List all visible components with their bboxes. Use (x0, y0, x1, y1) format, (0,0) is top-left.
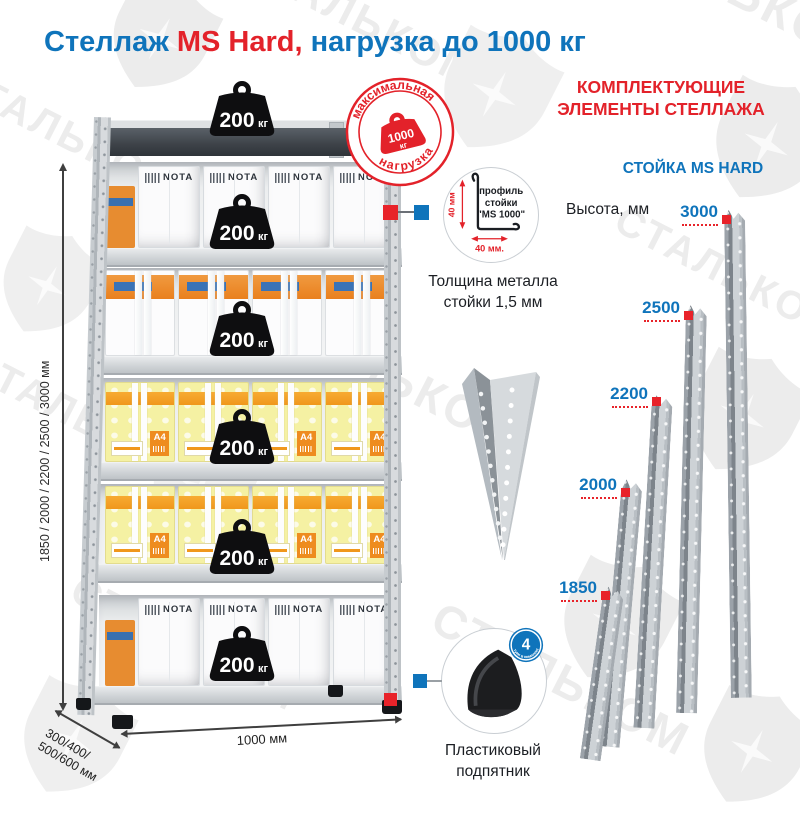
foot-caption: Пластиковый подпятник (417, 740, 569, 782)
red-marker-square (722, 215, 731, 224)
load-value: 200 (219, 329, 254, 352)
profile-cross-section-drawing: 40 мм 40 мм. профиль стойки "MS 1000" (444, 168, 537, 261)
post-height-label: 3000 (680, 203, 718, 226)
barcode-icon (145, 173, 160, 183)
connector-red-square (384, 693, 397, 706)
orange-stripe (179, 496, 247, 509)
orange-stripe (106, 392, 174, 405)
orange-stripe (253, 392, 321, 405)
profile-label: профиль (479, 186, 523, 197)
post-height-label: 2000 (579, 476, 617, 499)
orange-box (105, 620, 135, 686)
load-value: 200 (219, 654, 254, 677)
orange-stripe (253, 496, 321, 509)
post-subheading: СТОЙКА MS HARD (602, 160, 784, 178)
connector-blue-square (414, 205, 429, 220)
profile-caption-line: стойки 1,5 мм (417, 292, 569, 313)
strap (354, 271, 361, 355)
red-marker-square (601, 591, 610, 600)
load-unit: кг (258, 556, 269, 568)
profile-caption: Толщина металла стойки 1,5 мм (417, 271, 569, 313)
a4-label: A4 (297, 533, 316, 558)
post-3000 (724, 210, 752, 698)
title-part-blue: Стеллаж (44, 26, 177, 58)
dotted-leader (644, 320, 680, 322)
barcode-icon (340, 173, 355, 183)
barcode-icon (210, 605, 225, 615)
load-unit: кг (258, 446, 269, 458)
nota-paper-box: NOTA (138, 166, 200, 248)
load-value: 200 (219, 547, 254, 570)
box-brand-label: NOTA (228, 172, 258, 183)
profile-label: "MS 1000" (477, 209, 525, 220)
badge-4-pack: 4 штуки в комплекте (508, 627, 544, 663)
connector-blue-square (413, 674, 427, 688)
profile-dim-vertical: 40 мм (447, 192, 457, 217)
strap (135, 271, 142, 355)
post-2200 (633, 395, 673, 729)
post-height-value: 2500 (642, 299, 680, 316)
load-unit: кг (258, 231, 269, 243)
yellow-paper-box: A4 (105, 486, 175, 564)
shelf-beam (94, 356, 402, 375)
kettlebell-weight-icon: 200кг (202, 300, 282, 358)
box-brand-label: NOTA (163, 604, 193, 615)
barcode-icon (210, 173, 225, 183)
post-height-label: 2200 (610, 385, 648, 408)
dotted-leader (612, 406, 648, 408)
height-dimension-label: 1850 / 2000 / 2200 / 2500 / 3000 мм (38, 298, 52, 562)
dotted-leader (682, 224, 718, 226)
box-brand-label: NOTA (293, 172, 323, 183)
box-brand-label: NOTA (228, 604, 258, 615)
height-dimension-arrow (62, 170, 64, 704)
kettlebell-weight-icon: 200кг (202, 625, 282, 683)
kettlebell-weight-icon: 200кг (202, 80, 282, 138)
barcode-icon (275, 173, 290, 183)
post-height-label: 1850 (559, 579, 597, 602)
title-part-blue: нагрузка до 1000 кг (303, 26, 586, 58)
dotted-leader (581, 497, 617, 499)
page-title: Стеллаж MS Hard, нагрузка до 1000 кг (44, 26, 586, 59)
barcode-icon (340, 605, 355, 615)
post-height-value: 1850 (559, 579, 597, 596)
foot-caption-line: подпятник (417, 761, 569, 782)
load-value: 200 (219, 222, 254, 245)
rack-foot (76, 698, 91, 710)
box-brand-label: NOTA (163, 172, 193, 183)
box-brand-label: NOTA (293, 604, 323, 615)
dotted-leader (561, 600, 597, 602)
connector-red-square (383, 205, 398, 220)
corner-post-photo (452, 360, 544, 565)
strap (363, 271, 370, 355)
kettlebell-weight-icon: 200кг (202, 518, 282, 576)
components-heading-line: ЭЛЕМЕНТЫ СТЕЛЛАЖА (548, 98, 774, 120)
orange-stripe (106, 496, 174, 509)
load-unit: кг (258, 338, 269, 350)
components-heading-line: КОМПЛЕКТУЮЩИЕ (548, 76, 774, 98)
white-label (111, 543, 143, 558)
kettlebell-weight-icon: 200кг (202, 408, 282, 466)
kettlebell-weight-icon: 200кг (202, 193, 282, 251)
white-label (331, 543, 363, 558)
strap (290, 271, 297, 355)
a4-label: A4 (297, 431, 316, 456)
post-height-value: 2000 (579, 476, 617, 493)
post-height-value: 2200 (610, 385, 648, 402)
post-height-label: 2500 (642, 299, 680, 322)
load-value: 200 (219, 437, 254, 460)
rack-foot (112, 715, 133, 729)
orange-box (105, 186, 135, 248)
barcode-icon (275, 605, 290, 615)
profile-dim-horizontal: 40 мм. (475, 243, 504, 253)
post-height-value: 3000 (680, 203, 718, 220)
load-unit: кг (258, 118, 269, 130)
load-unit: кг (258, 663, 269, 675)
nota-paper-box: NOTA (138, 598, 200, 686)
white-label (111, 441, 143, 456)
title-part-red: MS Hard, (177, 26, 303, 58)
height-units-label: Высота, мм (566, 201, 649, 219)
strap (281, 271, 288, 355)
orange-top-box (105, 270, 175, 356)
profile-label: стойки (485, 198, 518, 209)
barcode-icon (145, 605, 160, 615)
load-value: 200 (219, 109, 254, 132)
orange-stripe (179, 392, 247, 405)
a4-label: A4 (150, 533, 169, 558)
watermark-text: СТАЛЬКОМ (594, 0, 800, 81)
red-marker-square (652, 397, 661, 406)
profile-caption-line: Толщина металла (417, 271, 569, 292)
a4-label: A4 (150, 431, 169, 456)
foot-caption-line: Пластиковый (417, 740, 569, 761)
shelf-beam (94, 686, 402, 705)
profile-detail-circle: 40 мм 40 мм. профиль стойки "MS 1000" (443, 167, 539, 263)
post-2500 (676, 305, 707, 713)
yellow-paper-box: A4 (105, 382, 175, 462)
badge-value: 4 (522, 637, 531, 654)
components-heading: КОМПЛЕКТУЮЩИЕ ЭЛЕМЕНТЫ СТЕЛЛАЖА (548, 76, 774, 120)
red-marker-square (684, 311, 693, 320)
rack-foot (328, 685, 343, 697)
strap (144, 271, 151, 355)
white-label (331, 441, 363, 456)
red-marker-square (621, 488, 630, 497)
